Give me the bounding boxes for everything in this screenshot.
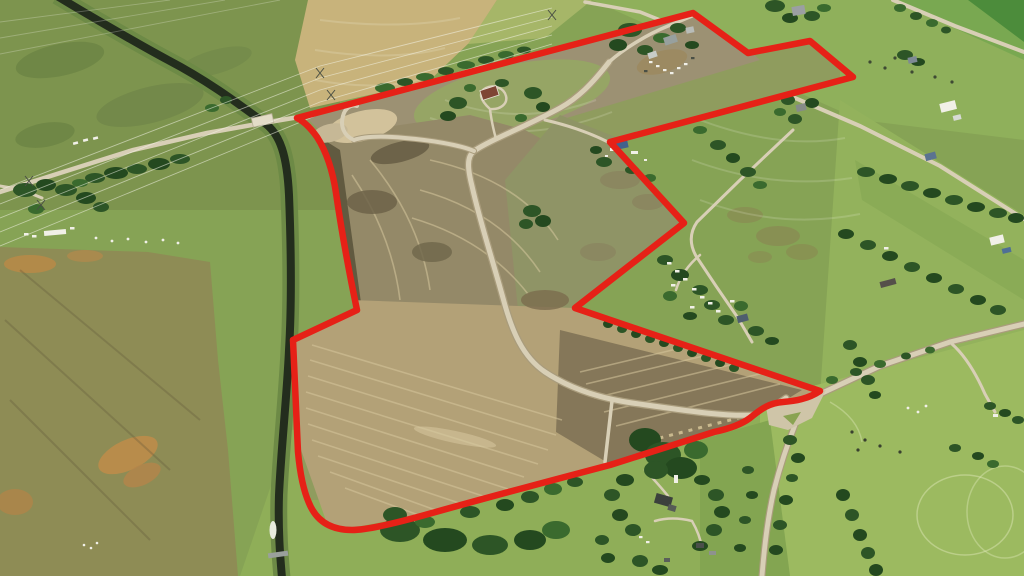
- aerial-photo-canvas: [0, 0, 1024, 576]
- shed-south-2: [709, 551, 716, 555]
- aerial-photo: [0, 0, 1024, 576]
- shed-south-3: [664, 558, 670, 562]
- canal-rapids: [270, 521, 277, 539]
- trailer-se-farm: [993, 414, 998, 417]
- shed-south-1: [696, 543, 704, 548]
- rv-south-acreage: [674, 475, 678, 483]
- white-trailer: [631, 151, 638, 154]
